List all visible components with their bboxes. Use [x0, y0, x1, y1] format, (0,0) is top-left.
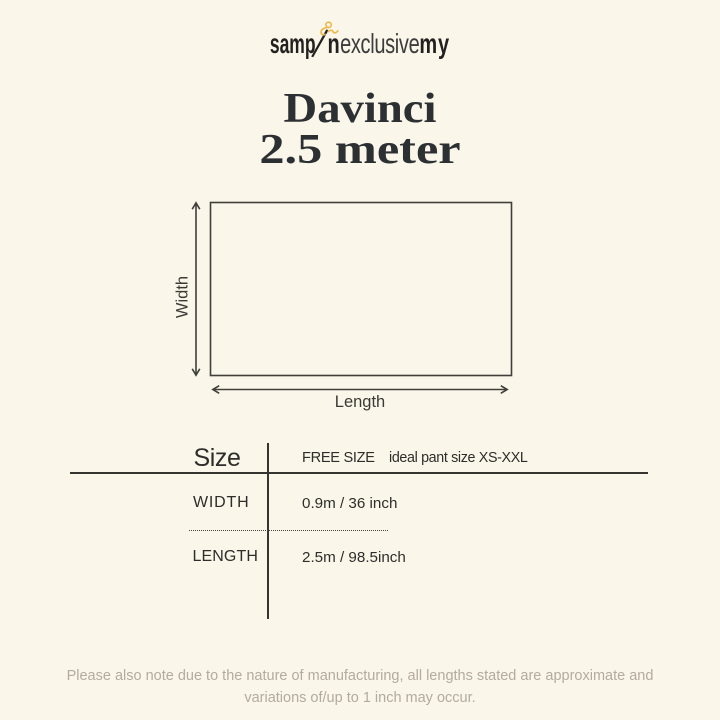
svg-text:Width: Width	[174, 276, 192, 318]
svg-text:Length: Length	[335, 393, 385, 411]
